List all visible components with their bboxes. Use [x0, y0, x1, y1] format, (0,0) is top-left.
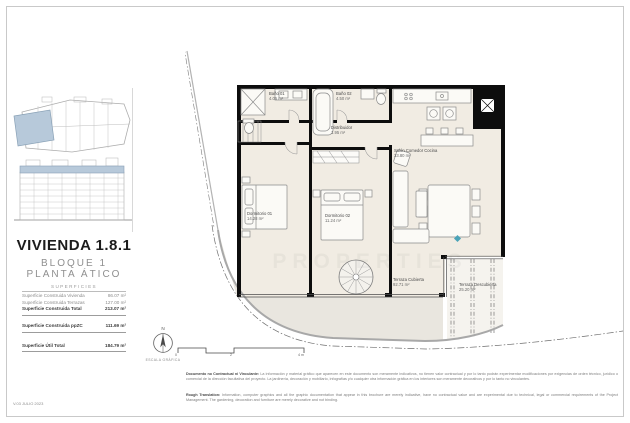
- table-row: Superficie Construida Vivienda 86.07 m²: [22, 293, 126, 300]
- table-rule: [22, 315, 126, 316]
- disclaimer-spanish: Documento no Contractual ni Vinculante: …: [186, 372, 618, 382]
- disclaimer-en-text: Information, computer graphics and all t…: [186, 393, 618, 402]
- unit-title: VIVIENDA 1.8.1: [0, 237, 148, 254]
- disclaimer-english: Rough Translation: Information, computer…: [186, 393, 618, 403]
- table-row: Superficie Construida ppZC 111.69 m²: [22, 323, 126, 330]
- highlighted-penthouse-floor: [20, 166, 124, 173]
- floor-plan-drawing: [185, 45, 625, 375]
- north-arrow-icon: [152, 332, 174, 354]
- scale-tick: 0: [175, 353, 177, 357]
- room-label-terraza-descubierta: Terraza Descubierta25.20 m²: [459, 282, 496, 293]
- row-label: Superficie Construida ppZC: [22, 323, 83, 330]
- room-label-terraza-cubierta: Terraza Cubierta92.71 m²: [393, 277, 424, 288]
- wardrobe: [313, 151, 359, 163]
- scale-tick: 2: [230, 353, 232, 357]
- row-value: 111.69 m²: [106, 323, 126, 330]
- table-rule: [22, 291, 126, 292]
- bed-dormitorio1: [242, 177, 287, 237]
- table-row: Superficie Construida Total 213.07 m²: [22, 306, 126, 313]
- version-note: V.03 JULIO 2023: [13, 401, 43, 406]
- scale-tick: 4 m: [298, 353, 304, 357]
- block-label: BLOQUE 1: [0, 258, 148, 269]
- row-value: 184.79 m²: [105, 343, 126, 350]
- plot-boundary-line: [187, 51, 218, 230]
- row-label: Superficie Construida Total: [22, 306, 82, 313]
- room-label-salon: Salón Comedor Cocina33.80 m²: [394, 148, 437, 159]
- disclaimer-en-lead: Rough Translation:: [186, 393, 220, 397]
- kitchen-island: [421, 135, 473, 146]
- areas-table-heading: SUPERFICIES: [0, 284, 148, 289]
- coffee-table: [416, 191, 427, 217]
- row-label: Superficie Útil Total: [22, 343, 65, 350]
- row-label: Superficie Construida Terrazas: [22, 300, 85, 307]
- room-label-dormitorio2: Dormitorio 0211.24 m²: [325, 213, 350, 224]
- building-elevation-thumbnail: [12, 154, 134, 228]
- watermark: PROPERTIES: [225, 250, 515, 274]
- areas-table: Superficie Construida Vivienda 86.07 m² …: [22, 293, 126, 355]
- table-rule: [22, 351, 126, 352]
- site-key-plan-thumbnail: [12, 90, 134, 164]
- scale-caption: ESCALA GRÁFICA: [138, 358, 188, 362]
- graphic-scale-bar: [176, 341, 308, 355]
- table-row: Superficie Útil Total 184.79 m²: [22, 343, 126, 350]
- north-compass: N: [148, 327, 178, 359]
- floor-label: PLANTA ÁTICO: [0, 269, 148, 280]
- plan-sheet: VIVIENDA 1.8.1 BLOQUE 1 PLANTA ÁTICO SUP…: [0, 0, 630, 423]
- room-label-bano1: Baño 014.05 m²: [269, 91, 285, 102]
- floor-plan: PROPERTIES Baño 014.05 m² Baño 024.50 m²…: [185, 45, 625, 375]
- disclaimer-es-lead: Documento no Contractual ni Vinculante:: [186, 372, 259, 376]
- room-label-distribuidor: Distribuidor1.95 m²: [331, 125, 352, 136]
- row-value: 86.07 m²: [108, 293, 126, 300]
- row-value: 127.00 m²: [105, 300, 126, 307]
- room-label-dormitorio1: Dormitorio 0114.28 m²: [247, 211, 272, 222]
- highlighted-unit-key-plan: [14, 110, 54, 146]
- room-label-bano2: Baño 024.50 m²: [336, 91, 352, 102]
- row-value: 213.07 m²: [105, 306, 126, 313]
- table-rule: [22, 332, 126, 333]
- row-label: Superficie Construida Vivienda: [22, 293, 85, 300]
- table-row: Superficie Construida Terrazas 127.00 m²: [22, 300, 126, 307]
